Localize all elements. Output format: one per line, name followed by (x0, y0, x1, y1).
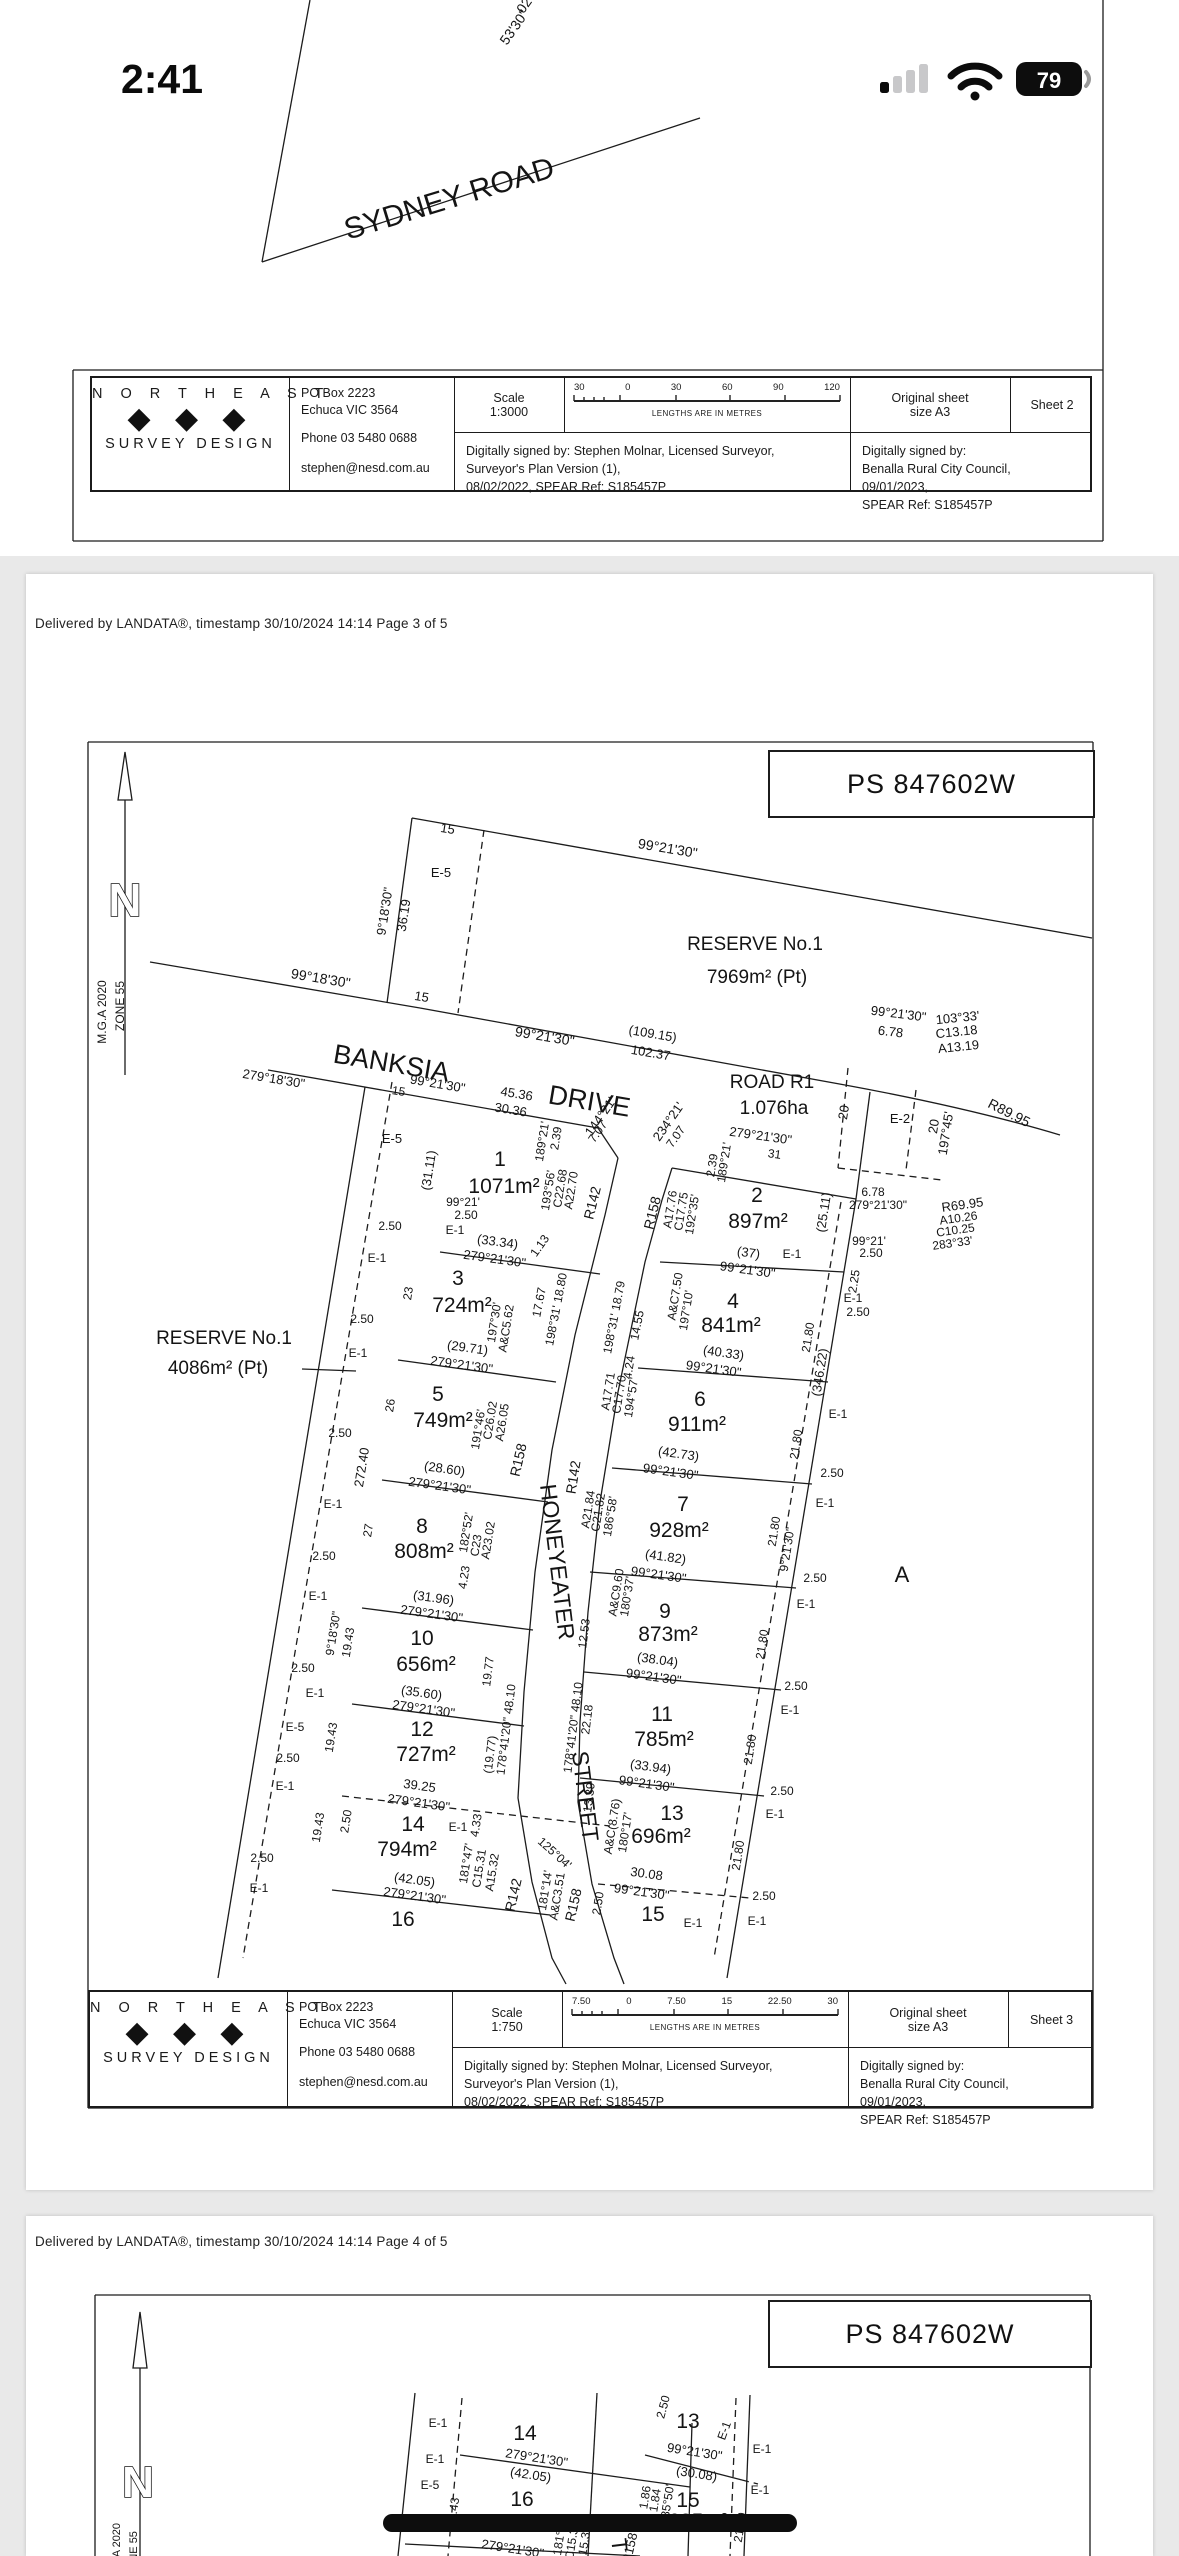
svg-text:2.50: 2.50 (820, 1466, 844, 1480)
svg-text:E-1: E-1 (781, 1703, 800, 1717)
svg-text:279°21'30": 279°21'30" (462, 1247, 527, 1271)
original-sheet-cell: Original sheet size A3 (850, 378, 1010, 432)
firm-logo-icon: ◆ ◆ ◆ (92, 402, 289, 436)
scale-label: Scale (493, 391, 524, 405)
firm-name: N O R T H E A S T (92, 386, 289, 402)
svg-text:15: 15 (641, 1903, 664, 1926)
svg-text:4: 4 (727, 1290, 739, 1313)
svg-text:23: 23 (400, 1285, 416, 1301)
surveyor-signature: Digitally signed by: Stephen Molnar, Lic… (454, 432, 850, 490)
scale-bar-cell: 7.5007.501522.5030 LENGTHS ARE IN METRES (562, 1992, 848, 2047)
svg-text:30.08: 30.08 (629, 1864, 663, 1883)
svg-text:N: N (122, 2458, 154, 2507)
svg-text:7969m² (Pt): 7969m² (Pt) (707, 967, 807, 988)
svg-text:R142: R142 (502, 1877, 525, 1913)
svg-text:2: 2 (751, 1184, 763, 1207)
svg-text:RESERVE No.1: RESERVE No.1 (687, 934, 823, 955)
svg-text:R89.95: R89.95 (986, 1095, 1034, 1130)
svg-text:E-1: E-1 (426, 2452, 445, 2466)
svg-text:15: 15 (413, 988, 430, 1005)
svg-text:99°21'30": 99°21'30" (642, 1460, 700, 1483)
svg-text:7: 7 (677, 1493, 689, 1516)
svg-text:E-1: E-1 (684, 1916, 703, 1930)
wifi-icon (951, 66, 999, 100)
svg-text:E-1: E-1 (753, 2442, 772, 2456)
svg-text:(37): (37) (736, 1244, 761, 1262)
scale-bar-numbers: 300306090120 (564, 378, 850, 393)
title-block-sheet3: N O R T H E A S T ◆ ◆ ◆ SURVEY DESIGN PO… (88, 1990, 1093, 2108)
svg-text:R142: R142 (580, 1184, 604, 1221)
svg-text:1: 1 (494, 1148, 506, 1171)
svg-text:21.80: 21.80 (787, 1428, 806, 1460)
title-block-sheet2: N O R T H E A S T ◆ ◆ ◆ SURVEY DESIGN PO… (90, 376, 1092, 492)
svg-text:2.50: 2.50 (350, 1312, 374, 1326)
svg-text:279°21'30": 279°21'30" (728, 1124, 793, 1148)
svg-text:21.80: 21.80 (741, 1733, 760, 1765)
firm-contact: PO Box 2223 Echuca VIC 3564 Phone 03 548… (289, 386, 454, 490)
svg-text:(31.11): (31.11) (418, 1149, 439, 1191)
svg-text:A23.02: A23.02 (478, 1520, 498, 1560)
svg-text:(42.73): (42.73) (657, 1443, 700, 1464)
firm-address1: PO Box 2223 (301, 386, 454, 400)
svg-text:897m²: 897m² (728, 1210, 788, 1233)
firm-address2: Echuca VIC 3564 (301, 403, 454, 417)
svg-text:4.33: 4.33 (467, 1812, 485, 1838)
svg-text:99°21': 99°21' (446, 1195, 480, 1209)
svg-text:(41.82): (41.82) (644, 1546, 687, 1567)
svg-text:727m²: 727m² (396, 1743, 456, 1766)
svg-text:21.80: 21.80 (799, 1321, 818, 1353)
svg-text:E-1: E-1 (429, 2416, 448, 2430)
svg-text:794m²: 794m² (377, 1838, 437, 1861)
svg-text:E-1: E-1 (816, 1496, 835, 1510)
svg-text:2.50: 2.50 (328, 1426, 352, 1440)
svg-text:198°31' 18.80: 198°31' 18.80 (542, 1271, 570, 1346)
original-sheet-cell: Original sheet size A3 (848, 1992, 1008, 2047)
svg-text:14: 14 (401, 1813, 425, 1836)
svg-text:21.80: 21.80 (753, 1628, 772, 1660)
svg-text:99°21'30": 99°21'30" (630, 1563, 688, 1586)
firm-subname: SURVEY DESIGN (92, 436, 289, 452)
svg-text:2.39: 2.39 (547, 1125, 565, 1151)
svg-text:27: 27 (360, 1522, 376, 1538)
svg-text:14: 14 (513, 2422, 537, 2445)
svg-text:873m²: 873m² (638, 1623, 698, 1646)
svg-text:99°21'30": 99°21'30" (613, 1880, 671, 1903)
svg-text:15: 15 (676, 2489, 699, 2512)
ps-number-box: PS 847602W (768, 2300, 1092, 2368)
svg-text:10: 10 (410, 1627, 433, 1650)
svg-text:2.50: 2.50 (752, 1889, 776, 1903)
svg-text:279°18'30": 279°18'30" (241, 1066, 306, 1091)
svg-text:11: 11 (651, 1703, 673, 1726)
sheet-number-cell: Sheet 2 (1010, 378, 1094, 432)
svg-text:785m²: 785m² (634, 1728, 694, 1751)
svg-text:928m²: 928m² (649, 1519, 709, 1542)
svg-text:E-1: E-1 (449, 1820, 468, 1834)
svg-text:12.53: 12.53 (575, 1617, 593, 1649)
svg-text:E-5: E-5 (286, 1720, 305, 1734)
svg-text:272.40: 272.40 (351, 1446, 372, 1488)
firm-logo-icon: ◆ ◆ ◆ (90, 2016, 287, 2050)
scale-bar-caption: LENGTHS ARE IN METRES (564, 409, 850, 418)
scale-bar-icon (564, 393, 850, 405)
svg-text:9: 9 (659, 1600, 671, 1623)
council-signature: Digitally signed by: Benalla Rural City … (850, 432, 1094, 490)
svg-text:808m²: 808m² (394, 1540, 454, 1563)
svg-text:2.50: 2.50 (653, 2394, 673, 2420)
svg-text:189°21': 189°21' (714, 1141, 734, 1183)
firm-logo: N O R T H E A S T ◆ ◆ ◆ SURVEY DESIGN (92, 378, 289, 490)
svg-text:279°21'30": 279°21'30" (849, 1198, 907, 1212)
firm-contact: PO Box 2223 Echuca VIC 3564 Phone 03 548… (287, 2000, 452, 2106)
svg-text:21.80: 21.80 (729, 1839, 748, 1871)
svg-text:M.G.A 2020: M.G.A 2020 (95, 980, 109, 1044)
svg-text:19.43: 19.43 (339, 1626, 358, 1658)
svg-text:197°45': 197°45' (935, 1110, 957, 1156)
svg-text:2.50: 2.50 (276, 1751, 300, 1765)
svg-text:19.43: 19.43 (322, 1721, 341, 1753)
svg-text:99°21'30": 99°21'30" (870, 1003, 927, 1025)
svg-text:15: 15 (439, 820, 456, 837)
scale-cell: Scale 1:3000 (454, 378, 564, 432)
svg-text:724m²: 724m² (432, 1294, 492, 1317)
firm-email: stephen@nesd.com.au (301, 461, 454, 475)
svg-text:841m²: 841m² (701, 1314, 761, 1337)
svg-text:E-1: E-1 (324, 1497, 343, 1511)
svg-text:SYDNEY ROAD: SYDNEY ROAD (340, 151, 558, 246)
svg-text:30.36: 30.36 (493, 1099, 528, 1119)
svg-text:4086m² (Pt): 4086m² (Pt) (168, 1358, 268, 1379)
svg-text:E-1: E-1 (250, 1881, 269, 1895)
firm-logo: N O R T H E A S T ◆ ◆ ◆ SURVEY DESIGN (90, 1992, 287, 2106)
svg-text:E-1: E-1 (306, 1686, 325, 1700)
svg-text:12: 12 (410, 1718, 433, 1741)
svg-text:2.50: 2.50 (378, 1219, 402, 1233)
status-bar: 2:41 79 (0, 0, 1179, 130)
svg-text:99°21'30": 99°21'30" (637, 835, 699, 861)
council-signature: Digitally signed by: Benalla Rural City … (848, 2047, 1095, 2106)
svg-text:279°21'30": 279°21'30" (391, 1697, 456, 1721)
svg-text:E-1: E-1 (748, 1914, 767, 1928)
scale-cell: Scale 1:750 (452, 1992, 562, 2047)
svg-text:4.23: 4.23 (455, 1564, 473, 1590)
svg-text:2.50: 2.50 (770, 1784, 794, 1798)
svg-text:A13.19: A13.19 (937, 1037, 980, 1056)
svg-text:911m²: 911m² (668, 1413, 726, 1436)
svg-text:2.50: 2.50 (291, 1661, 315, 1675)
svg-text:E-1: E-1 (844, 1291, 863, 1305)
svg-text:E-1: E-1 (446, 1223, 465, 1237)
svg-text:E-5: E-5 (382, 1131, 402, 1146)
sheet-number-cell: Sheet 3 (1008, 1992, 1095, 2047)
svg-text:R158: R158 (507, 1442, 530, 1478)
svg-text:6: 6 (694, 1388, 706, 1411)
landata-header-page4: Delivered by LANDATA®, timestamp 30/10/2… (35, 2234, 448, 2249)
svg-text:279°21'30": 279°21'30" (399, 1602, 464, 1626)
svg-text:99°21'30": 99°21'30" (409, 1072, 467, 1096)
svg-text:2.50: 2.50 (784, 1679, 808, 1693)
svg-text:13: 13 (660, 1802, 683, 1825)
svg-text:5: 5 (432, 1383, 444, 1406)
ps-number-box: PS 847602W (768, 750, 1095, 818)
svg-text:E-1: E-1 (797, 1597, 816, 1611)
scale-value: 1:3000 (490, 405, 528, 419)
svg-text:2.50: 2.50 (454, 1208, 478, 1222)
svg-text:9°18'30": 9°18'30" (373, 886, 395, 937)
svg-text:696m²: 696m² (631, 1825, 691, 1848)
svg-text:16: 16 (510, 2488, 533, 2511)
svg-text:17.67: 17.67 (529, 1286, 549, 1318)
battery-icon: 79 (1016, 62, 1089, 96)
firm-phone: Phone 03 5480 0688 (301, 431, 454, 445)
svg-text:M.G.A 2020: M.G.A 2020 (111, 2523, 123, 2556)
scale-bar-numbers: 7.5007.501522.5030 (562, 1992, 848, 2007)
svg-text:1.076ha: 1.076ha (740, 1098, 809, 1119)
svg-text:36.19: 36.19 (394, 898, 414, 932)
landata-header-page3: Delivered by LANDATA®, timestamp 30/10/2… (35, 616, 448, 631)
svg-text:6.78: 6.78 (877, 1023, 904, 1041)
svg-text:2.50: 2.50 (250, 1851, 274, 1865)
svg-text:13: 13 (676, 2410, 699, 2433)
svg-text:ROAD R1: ROAD R1 (730, 1072, 814, 1093)
svg-text:ZONE 55: ZONE 55 (128, 2531, 140, 2556)
svg-text:E-2: E-2 (890, 1111, 910, 1126)
svg-text:N: N (108, 874, 141, 926)
svg-text:14.55: 14.55 (627, 1309, 647, 1341)
svg-text:A: A (895, 1562, 910, 1587)
svg-text:15: 15 (391, 1083, 407, 1099)
svg-text:E-1: E-1 (751, 2483, 770, 2497)
svg-text:19.43: 19.43 (309, 1811, 328, 1843)
scale-bar-cell: 300306090120 LENGTHS ARE IN METRES (564, 378, 850, 432)
svg-text:(30.08): (30.08) (675, 2463, 718, 2484)
svg-text:6.78: 6.78 (861, 1185, 885, 1199)
svg-text:749m²: 749m² (413, 1409, 473, 1432)
svg-text:2.50: 2.50 (312, 1549, 336, 1563)
svg-text:2.50: 2.50 (589, 1890, 607, 1916)
status-icons: 79 (0, 0, 1179, 130)
svg-text:1.13: 1.13 (527, 1232, 552, 1259)
svg-text:E-1: E-1 (714, 2419, 734, 2442)
svg-text:2.50: 2.50 (337, 1808, 355, 1834)
svg-text:2.50: 2.50 (859, 1246, 883, 1260)
pdf-viewer[interactable]: SYDNEY ROAD0253'30"NM.G.A 2020ZONE 55159… (0, 0, 1179, 2556)
svg-text:RESERVE No.1: RESERVE No.1 (156, 1328, 292, 1349)
svg-text:3: 3 (452, 1267, 464, 1290)
scale-bar-icon (562, 2007, 848, 2019)
svg-text:E-5: E-5 (431, 865, 451, 880)
svg-text:99°21'30": 99°21'30" (719, 1258, 777, 1281)
svg-text:99°21'30": 99°21'30" (514, 1023, 576, 1049)
svg-text:E-1: E-1 (783, 1247, 802, 1261)
svg-text:HONEYEATER: HONEYEATER (535, 1482, 580, 1641)
surveyor-signature: Digitally signed by: Stephen Molnar, Lic… (452, 2047, 848, 2106)
svg-text:E-1: E-1 (276, 1779, 295, 1793)
svg-text:26: 26 (382, 1397, 398, 1413)
svg-text:19.77: 19.77 (479, 1655, 497, 1687)
cellular-signal-icon (880, 64, 928, 93)
svg-text:99°21'30": 99°21'30" (666, 2440, 724, 2464)
svg-text:E-5: E-5 (421, 2478, 440, 2492)
home-indicator[interactable] (383, 2514, 797, 2532)
svg-text:E-1: E-1 (829, 1407, 848, 1421)
svg-text:198°31' 18.79: 198°31' 18.79 (600, 1279, 628, 1354)
svg-text:R142: R142 (563, 1459, 584, 1495)
svg-text:279°21'30": 279°21'30" (386, 1791, 451, 1815)
svg-text:2.50: 2.50 (846, 1305, 870, 1319)
svg-text:79: 79 (1037, 68, 1061, 93)
svg-text:E-1: E-1 (309, 1589, 328, 1603)
svg-text:2.50: 2.50 (803, 1571, 827, 1585)
svg-text:39.25: 39.25 (402, 1776, 436, 1795)
svg-text:8: 8 (416, 1515, 428, 1538)
svg-text:279°21'30": 279°21'30" (480, 2536, 545, 2556)
svg-text:R158: R158 (562, 1887, 585, 1923)
svg-text:31: 31 (767, 1146, 782, 1162)
svg-text:178°41'20" 48.10: 178°41'20" 48.10 (494, 1683, 519, 1776)
svg-text:279°21'30": 279°21'30" (382, 1884, 447, 1908)
svg-text:E-1: E-1 (368, 1251, 387, 1265)
svg-text:E-1: E-1 (766, 1807, 785, 1821)
svg-text:22.18: 22.18 (578, 1703, 596, 1735)
svg-text:(25.11): (25.11) (813, 1191, 834, 1233)
svg-text:DRIVE: DRIVE (546, 1080, 632, 1123)
svg-text:20: 20 (835, 1104, 852, 1121)
svg-text:656m²: 656m² (396, 1653, 456, 1676)
svg-text:16: 16 (391, 1908, 414, 1931)
svg-text:125°04': 125°04' (535, 1834, 574, 1871)
svg-text:E-1: E-1 (349, 1346, 368, 1360)
svg-text:102.37: 102.37 (630, 1042, 672, 1063)
svg-text:ZONE 55: ZONE 55 (113, 981, 127, 1031)
scale-bar-caption: LENGTHS ARE IN METRES (562, 2023, 848, 2032)
